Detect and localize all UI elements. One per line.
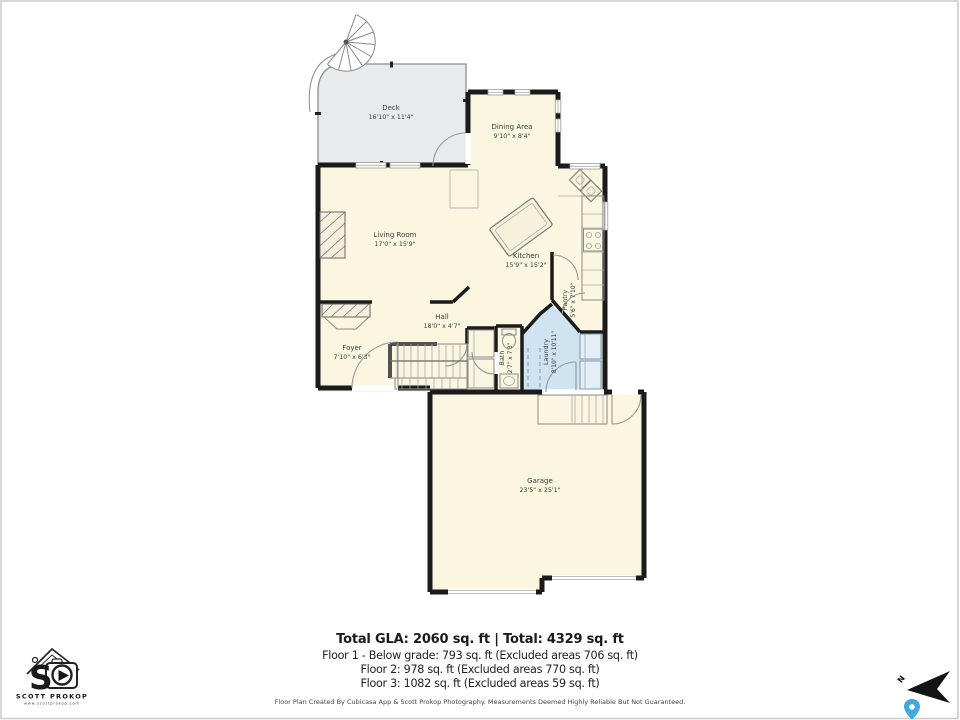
garage-dims: 23'5" x 25'1" (519, 487, 560, 494)
bath-dims: 2'7" x 7'3" (508, 342, 514, 373)
dining-dims: 9'10" x 8'4" (493, 133, 530, 140)
kitchen-label: Kitchen (513, 252, 539, 260)
floorplan-page: Deck 16'10" x 11'4" (0, 0, 960, 720)
deck-post (390, 62, 393, 68)
map-pin-hole (909, 704, 915, 710)
kitchen-dims: 15'9" x 15'2" (505, 262, 546, 269)
floor1-line: Floor 1 - Below grade: 793 sq. ft (Exclu… (322, 649, 638, 662)
floorplan-svg: Deck 16'10" x 11'4" (0, 0, 960, 720)
pantry-dims: 5'6" x 7'10" (571, 282, 577, 317)
deck-post (315, 112, 321, 115)
bath-label: Bath (498, 351, 506, 366)
living-label: Living Room (374, 231, 417, 239)
deck-label: Deck (382, 104, 401, 112)
living-dims: 17'0" x 15'9" (374, 241, 415, 248)
foyer-label: Foyer (342, 344, 362, 352)
logo-website-text: www.scottprokop.com (24, 702, 80, 706)
fireplace (320, 212, 345, 258)
laundry-dims: 8'10" x 10'11" (552, 331, 558, 373)
dining-label: Dining Area (492, 123, 533, 131)
deck-dims: 16'10" x 11'4" (368, 114, 413, 121)
garage-label: Garage (527, 477, 553, 485)
disclaimer-line: Floor Plan Created By Cubicasa App & Sco… (275, 698, 686, 706)
laundry-label: Laundry (542, 339, 550, 365)
floor2-line: Floor 2: 978 sq. ft (Excluded areas 770 … (361, 663, 600, 676)
hall-dims: 18'0" x 4'7" (423, 323, 460, 330)
logo-monogram: S (29, 658, 53, 697)
pantry-label: Pantry (561, 290, 569, 311)
foyer-dims: 7'10" x 6'3" (333, 354, 370, 361)
floor3-line: Floor 3: 1082 sq. ft (Excluded areas 59 … (361, 677, 600, 690)
total-gla-line: Total GLA: 2060 sq. ft | Total: 4329 sq.… (336, 632, 624, 647)
hall-label: Hall (435, 313, 448, 321)
logo-brand-text: SCOTT PROKOP (16, 693, 88, 701)
